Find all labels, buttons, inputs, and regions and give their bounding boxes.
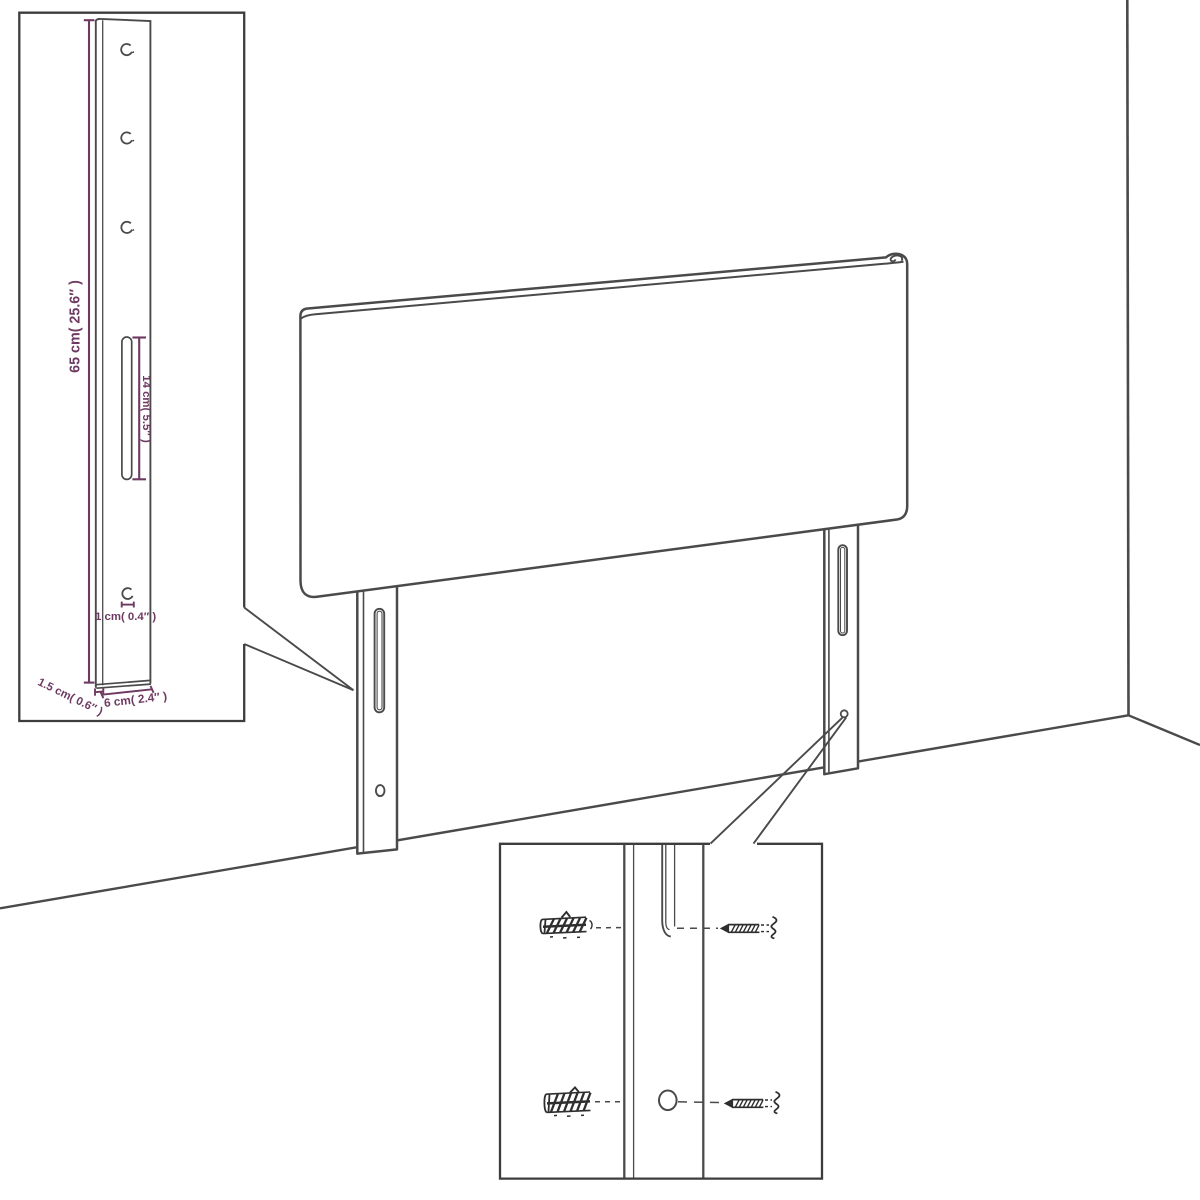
svg-text:14 cm( 5.5″ ): 14 cm( 5.5″ ) bbox=[140, 375, 152, 443]
svg-text:65 cm( 25.6″ ): 65 cm( 25.6″ ) bbox=[67, 280, 83, 373]
svg-text:1 cm( 0.4″ ): 1 cm( 0.4″ ) bbox=[95, 611, 156, 623]
